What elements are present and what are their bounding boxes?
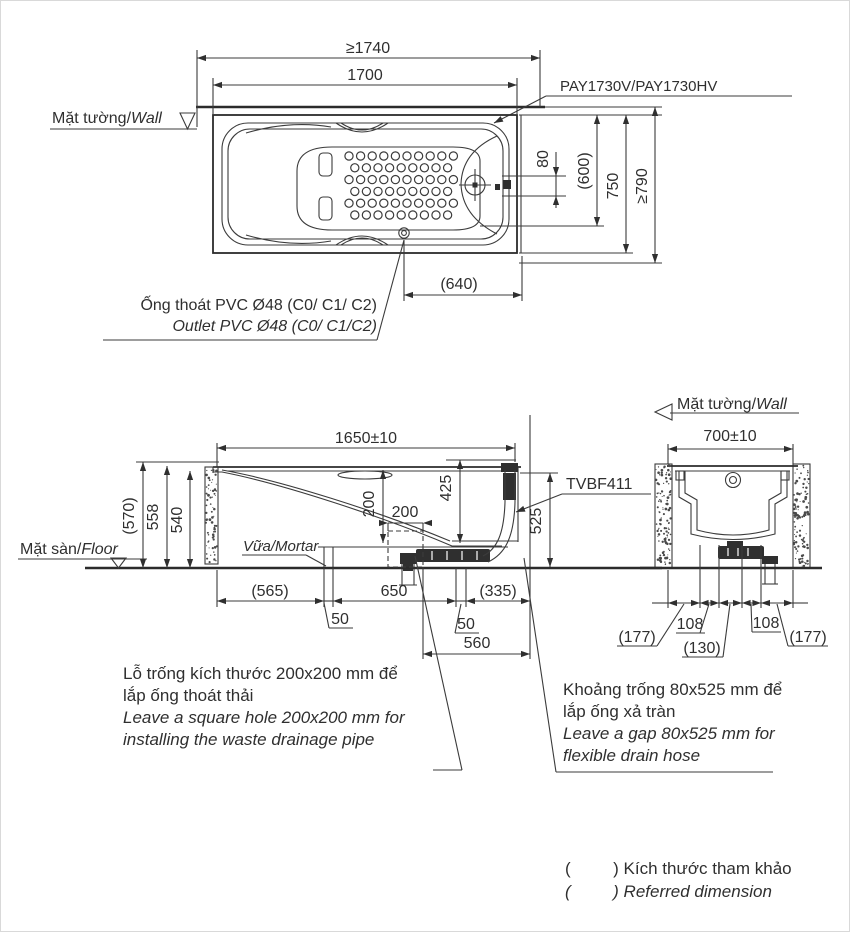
stipple-dot: [210, 503, 212, 505]
stipple-dot: [657, 471, 660, 474]
stipple-dot: [214, 531, 216, 533]
arrowhead-icon: [164, 559, 170, 568]
antislip-dot: [426, 176, 434, 184]
outlet-note-vi: Ống thoát PVC Ø48 (C0/ C1/ C2): [140, 294, 377, 314]
drain-trap: [416, 549, 490, 562]
antislip-dot: [374, 211, 382, 219]
stipple-dot: [806, 560, 808, 562]
stipple-dot: [656, 482, 658, 484]
gap-note-vi-1: Khoảng trống 80x525 mm để: [563, 680, 782, 699]
stipple-dot: [658, 540, 660, 542]
stipple-dot: [804, 491, 806, 493]
hole-note-vi-2: lắp ống thoát thải: [123, 686, 253, 705]
stipple-dot: [800, 501, 801, 502]
stipple-dot: [662, 496, 663, 497]
legend-en: ( ) Referred dimension: [565, 882, 772, 901]
stipple-dot: [807, 472, 809, 474]
stipple-dot: [669, 517, 671, 519]
stipple-dot: [804, 496, 807, 499]
stipple-dot: [206, 553, 208, 555]
arrowhead-icon: [553, 167, 559, 176]
stipple-dot: [211, 482, 212, 483]
antislip-dot: [345, 199, 353, 207]
stipple-dot: [795, 558, 796, 559]
stipple-dot: [804, 478, 806, 480]
dim-offset-label: 80: [535, 150, 552, 168]
arrowhead-icon: [752, 600, 761, 606]
drawing-canvas: Mặt tường/Wall ≥1740 1700 PAY1730V/PAY17…: [0, 0, 850, 932]
stipple-dot: [658, 466, 659, 467]
arrowhead-icon: [521, 651, 530, 657]
stipple-dot: [669, 477, 672, 480]
arrowhead-icon: [742, 600, 751, 606]
stipple-dot: [804, 516, 805, 517]
antislip-dot: [362, 187, 370, 195]
floor-label: Mặt sàn/Floor: [20, 541, 118, 558]
stipple-dot: [214, 546, 217, 549]
stipple-dot: [807, 475, 808, 476]
drain-elbow: [762, 556, 778, 564]
stipple-dot: [657, 506, 659, 508]
antislip-dot: [397, 187, 405, 195]
stipple-dot: [795, 508, 796, 509]
stipple-dot: [662, 541, 664, 543]
arrowhead-icon: [553, 196, 559, 205]
stipple-dot: [659, 523, 661, 525]
grip-hole-top: [319, 153, 332, 176]
stipple-dot: [216, 490, 218, 492]
stipple-dot: [807, 470, 808, 471]
antislip-dot: [420, 164, 428, 172]
stipple-dot: [670, 490, 672, 492]
dim-depth-label: 200: [361, 491, 378, 518]
arrowhead-icon: [547, 473, 553, 482]
stipple-dot: [794, 521, 796, 523]
antislip-dot: [415, 176, 423, 184]
dim-177-left-label: (177): [618, 629, 655, 646]
arrowhead-icon: [784, 446, 793, 452]
stipple-dot: [796, 468, 798, 470]
stipple-dot: [206, 493, 207, 494]
arrowhead-icon: [547, 558, 553, 567]
stipple-dot: [656, 523, 658, 525]
stipple-dot: [793, 494, 795, 496]
antislip-dot: [403, 176, 411, 184]
dim-drain-label: (640): [440, 276, 477, 293]
antislip-dot: [386, 211, 394, 219]
stipple-dot: [661, 490, 663, 492]
stipple-dot: [665, 530, 667, 532]
stipple-dot: [807, 513, 810, 516]
stipple-dot: [666, 503, 669, 506]
stipple-dot: [210, 555, 211, 556]
stipple-dot: [208, 534, 210, 536]
stipple-dot: [799, 561, 802, 564]
antislip-dot: [426, 152, 434, 160]
arrowhead-icon: [513, 292, 522, 298]
arrowhead-icon: [652, 107, 658, 116]
stipple-dot: [795, 472, 796, 473]
arrowhead-icon: [710, 600, 719, 606]
stipple-dot: [207, 477, 210, 480]
dim-hole-label: 200: [392, 504, 419, 521]
antislip-dot: [432, 187, 440, 195]
stipple-dot: [799, 477, 801, 479]
stipple-dot: [803, 537, 805, 539]
stipple-dot: [799, 516, 801, 518]
stipple-dot: [801, 558, 803, 560]
arrowhead-icon: [140, 559, 146, 568]
stipple-dot: [795, 506, 797, 508]
arrowhead-icon: [700, 600, 709, 606]
section-view: Mặt tường/Wall 700±10: [617, 396, 828, 657]
stipple-dot: [663, 483, 664, 484]
arrowhead-icon: [594, 217, 600, 226]
stipple-dot: [795, 535, 797, 537]
stipple-dot: [800, 472, 802, 474]
tub-inner-contour: [228, 129, 503, 239]
drain-elbow: [400, 553, 417, 564]
stipple-dot: [668, 473, 671, 476]
antislip-dot: [351, 187, 359, 195]
stipple-dot: [666, 500, 668, 502]
notes: Lỗ trống kích thước 200x200 mm để lắp ốn…: [123, 664, 792, 901]
antislip-dot: [391, 199, 399, 207]
stipple-dot: [213, 551, 214, 552]
stipple-dot: [668, 522, 670, 524]
stipple-dot: [205, 474, 208, 477]
antislip-dot: [438, 199, 446, 207]
antislip-dot: [409, 187, 417, 195]
stipple-dot: [205, 522, 207, 524]
stipple-dot: [666, 543, 668, 545]
antislip-dot: [397, 211, 405, 219]
stipple-dot: [214, 474, 216, 476]
gap-note-en-2: flexible drain hose: [563, 746, 700, 765]
rim-bracket: [676, 471, 684, 480]
antislip-dot: [345, 176, 353, 184]
wall-label-en: Wall: [756, 396, 787, 413]
arrowhead-icon: [761, 600, 770, 606]
stipple-dot: [657, 558, 659, 560]
stipple-dot: [212, 497, 213, 498]
stipple-dot: [658, 528, 659, 529]
stipple-dot: [660, 493, 661, 494]
stipple-dot: [797, 505, 799, 507]
stipple-dot: [211, 521, 214, 524]
arrowhead-icon: [652, 254, 658, 263]
arrowhead-icon: [531, 55, 540, 61]
dim-width-label: 750: [605, 173, 622, 200]
arrowhead-icon: [457, 460, 463, 469]
wall-label: Mặt tường/Wall: [677, 396, 787, 413]
antislip-dot: [403, 152, 411, 160]
bathtub-installation-drawing: Mặt tường/Wall ≥1740 1700 PAY1730V/PAY17…: [0, 0, 850, 932]
stipple-dot: [667, 496, 670, 499]
stipple-dot: [215, 495, 216, 496]
dim-108-right-label: 108: [753, 615, 780, 632]
legend-vi: ( ) Kích thước tham khảo: [565, 859, 792, 878]
stipple-dot: [794, 482, 796, 484]
arrowhead-icon: [506, 445, 515, 451]
stipple-dot: [213, 508, 216, 511]
stipple-dot: [802, 500, 805, 503]
stipple-dot: [797, 550, 799, 552]
stipple-dot: [208, 484, 210, 486]
wall-label-vi: Mặt tường/: [677, 396, 757, 413]
stipple-dot: [665, 508, 668, 511]
antislip-dot: [397, 164, 405, 172]
top-view: Mặt tường/Wall ≥1740 1700 PAY1730V/PAY17…: [50, 40, 792, 340]
dim-525-label: 525: [528, 508, 545, 535]
antislip-dot: [415, 199, 423, 207]
stipple-dot: [664, 561, 665, 562]
stipple-dot: [207, 494, 210, 497]
stipple-dot: [209, 497, 211, 499]
stipple-dot: [668, 532, 670, 534]
arrowhead-icon: [315, 598, 324, 604]
outlet-hole-center: [402, 231, 407, 236]
arrowhead-icon: [457, 534, 463, 543]
antislip-dot: [380, 152, 388, 160]
antislip-dot: [409, 164, 417, 172]
mortar-label: Vữa/Mortar: [243, 538, 319, 555]
stipple-dot: [667, 469, 670, 472]
stipple-dot: [794, 534, 795, 535]
stipple-dot: [794, 540, 795, 541]
stipple-dot: [666, 481, 668, 483]
drain-trap: [718, 546, 764, 559]
antislip-dot: [357, 176, 365, 184]
antislip-dot: [351, 211, 359, 219]
stipple-dot: [655, 479, 658, 482]
wall-label: Mặt tường/Wall: [52, 110, 162, 127]
stipple-dot: [659, 559, 662, 562]
stipple-dot: [669, 559, 670, 560]
stipple-dot: [659, 474, 660, 475]
stipple-dot: [207, 532, 209, 534]
antislip-dot: [444, 164, 452, 172]
antislip-dot: [449, 199, 457, 207]
stipple-dot: [663, 533, 665, 535]
stipple-dot: [206, 558, 208, 560]
dim-565-label: (565): [251, 583, 288, 600]
stipple-dot: [206, 545, 207, 546]
dim-425-label: 425: [438, 475, 455, 502]
stipple-dot: [802, 566, 803, 567]
stipple-dot: [209, 561, 211, 563]
stipple-dot: [656, 530, 658, 532]
arrowhead-icon: [508, 82, 517, 88]
stipple-dot: [796, 501, 797, 502]
dim-leader: [751, 604, 752, 632]
stipple-dot: [656, 469, 657, 470]
outlet-leader: [377, 240, 404, 340]
stipple-dot: [663, 554, 665, 556]
stipple-dot: [666, 527, 668, 529]
dim-leader: [723, 604, 730, 657]
stipple-dot: [794, 546, 796, 548]
antislip-dot: [374, 187, 382, 195]
antislip-dot: [438, 176, 446, 184]
overflow-fitting: [503, 180, 511, 189]
stipple-dot: [802, 543, 804, 545]
stipple-dot: [212, 479, 213, 480]
arrowhead-icon: [217, 598, 226, 604]
stipple-dot: [805, 487, 807, 489]
stipple-dot: [666, 520, 668, 522]
arrowhead-icon: [423, 520, 432, 526]
gap-note-en-1: Leave a gap 80x525 mm for: [563, 724, 776, 743]
stipple-dot: [666, 534, 668, 536]
dim-335-label: (335): [479, 583, 516, 600]
antislip-dot: [444, 187, 452, 195]
arrowhead-icon: [623, 115, 629, 124]
dim-h-inner-label: 540: [169, 507, 186, 534]
arrowhead-icon: [516, 506, 526, 512]
stipple-dot: [802, 525, 803, 526]
arrowhead-icon: [404, 292, 413, 298]
stipple-dot: [803, 565, 805, 567]
stipple-dot: [213, 558, 215, 560]
stipple-dot: [656, 496, 658, 498]
wall-datum-icon: [180, 113, 195, 129]
model-label: PAY1730V/PAY1730HV: [560, 78, 717, 95]
stipple-dot: [668, 483, 669, 484]
stipple-dot: [212, 507, 213, 508]
dim-50-right-label: 50: [457, 616, 475, 633]
antislip-dot: [426, 199, 434, 207]
antislip-dot: [351, 164, 359, 172]
stipple-dot: [659, 519, 662, 522]
stipple-dot: [801, 493, 802, 494]
stipple-dot: [666, 472, 667, 473]
stipple-dot: [795, 541, 797, 543]
stipple-dot: [795, 480, 798, 483]
stipple-dot: [665, 474, 667, 476]
stipple-dot: [662, 509, 663, 510]
stipple-dot: [206, 470, 207, 471]
stipple-dot: [660, 501, 662, 503]
gap-note-leader: [524, 558, 556, 772]
outlet-note-en: Outlet PVC Ø48 (C0/ C1/C2): [172, 318, 377, 335]
stipple-dot: [206, 499, 208, 501]
antislip-dot-grid: [345, 152, 458, 219]
antislip-dot: [432, 164, 440, 172]
arrowhead-icon: [140, 462, 146, 471]
stipple-dot: [669, 550, 670, 551]
tub-outer-rect: [213, 115, 517, 253]
hole-note-en-2: installing the waste drainage pipe: [123, 730, 374, 749]
arrowhead-icon: [733, 600, 742, 606]
stipple-dot: [205, 512, 207, 514]
antislip-dot: [438, 152, 446, 160]
stipple-dot: [796, 531, 798, 533]
stipple-dot: [802, 483, 804, 485]
wall-arrow-icon: [655, 404, 672, 420]
stipple-dot: [212, 469, 214, 471]
arrowhead-icon: [380, 534, 386, 543]
arrowhead-icon: [197, 55, 206, 61]
arrowhead-icon: [691, 600, 700, 606]
arrowhead-icon: [623, 244, 629, 253]
stipple-dot: [805, 514, 807, 516]
dim-177-right-label: (177): [789, 629, 826, 646]
arrowhead-icon: [668, 600, 677, 606]
stipple-dot: [803, 545, 806, 548]
stipple-dot: [806, 533, 807, 534]
stipple-dot: [214, 488, 216, 490]
antislip-dot: [391, 176, 399, 184]
dim-130-label: (130): [683, 640, 720, 657]
stipple-dot: [668, 465, 671, 468]
stipple-dot: [667, 554, 668, 555]
stipple-dot: [209, 547, 210, 548]
stipple-dot: [660, 530, 662, 532]
antislip-dot: [386, 187, 394, 195]
stipple-dot: [793, 542, 795, 544]
stipple-dot: [661, 474, 664, 477]
stipple-dot: [215, 525, 217, 527]
antislip-dot: [380, 199, 388, 207]
stipple-dot: [662, 507, 663, 508]
stipple-dot: [659, 499, 660, 500]
wall-label-vi: Mặt tường/: [52, 110, 132, 127]
dim-560-label: 560: [464, 635, 491, 652]
stipple-dot: [211, 511, 213, 513]
grip-hole-bottom: [319, 197, 332, 220]
stipple-dot: [213, 538, 215, 540]
antislip-dot: [362, 164, 370, 172]
stipple-dot: [794, 529, 795, 530]
stipple-dot: [794, 526, 796, 528]
gap-note-vi-2: lắp ống xả tràn: [563, 702, 675, 721]
stipple-dot: [658, 529, 659, 530]
part-label: TVBF411: [566, 476, 633, 493]
stipple-dot: [808, 502, 810, 504]
antislip-dot: [368, 199, 376, 207]
stipple-dot: [211, 470, 212, 471]
stipple-dot: [206, 519, 208, 521]
antislip-dot: [420, 187, 428, 195]
dim-50-left-leader: [324, 603, 329, 628]
stipple-dot: [801, 554, 804, 557]
mortar-column: [205, 467, 218, 564]
dim-inner-width-label: (600): [576, 152, 593, 189]
stipple-dot: [806, 547, 809, 550]
stipple-dot: [670, 471, 671, 472]
antislip-dot: [374, 164, 382, 172]
wall-label-en: Wall: [131, 110, 162, 127]
arrowhead-icon: [447, 598, 456, 604]
outlet-hole: [399, 228, 409, 238]
grip-hole-section: [726, 473, 741, 488]
antislip-dot: [368, 176, 376, 184]
stipple-dot: [794, 499, 797, 502]
stipple-dot: [799, 530, 801, 532]
stipple-dot: [797, 545, 799, 547]
arrowhead-icon: [213, 82, 222, 88]
dim-650-label: 650: [381, 583, 408, 600]
stipple-dot: [657, 493, 659, 495]
stipple-dot: [664, 557, 667, 560]
stipple-dot: [664, 538, 667, 541]
antislip-dot: [391, 152, 399, 160]
dim-overall-length-label: ≥1740: [346, 40, 390, 57]
stipple-dot: [668, 528, 670, 530]
stipple-dot: [802, 487, 804, 489]
stipple-dot: [661, 472, 663, 474]
